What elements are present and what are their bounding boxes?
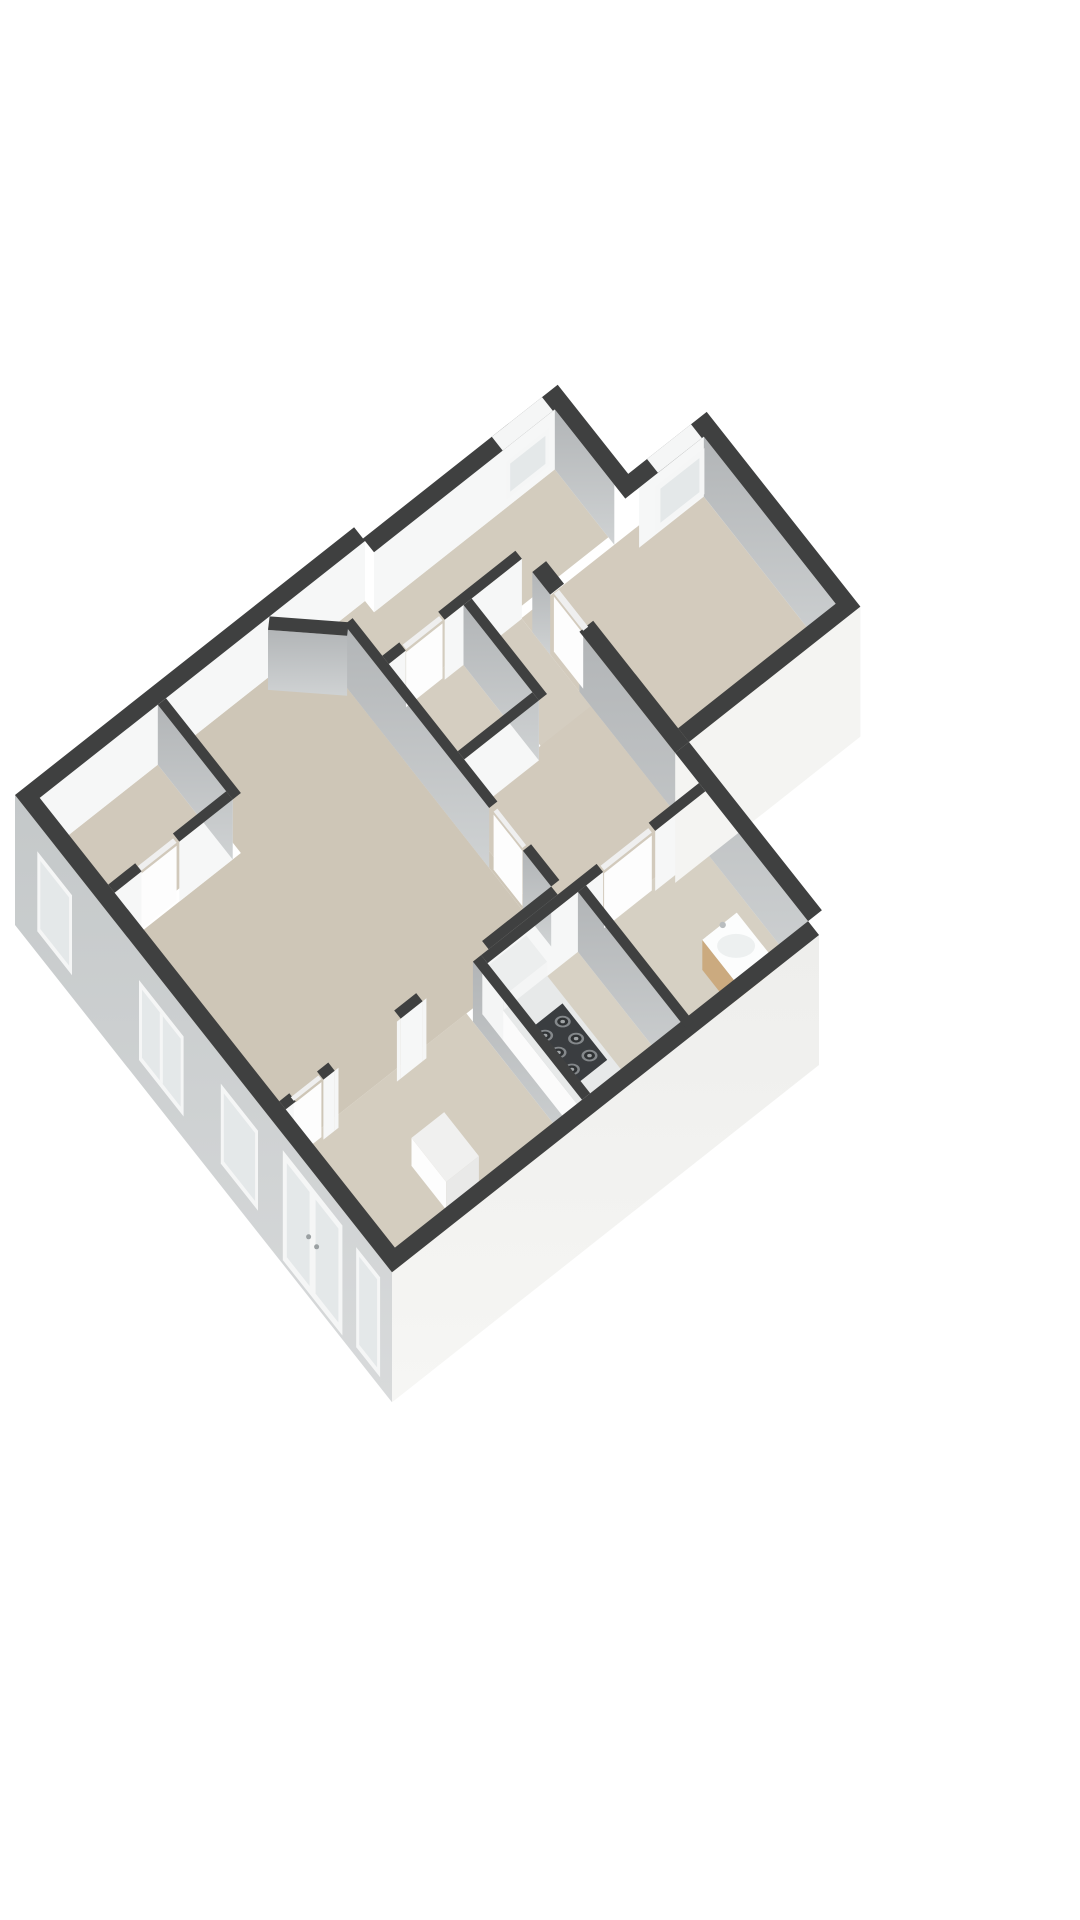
window-mullion [160,1012,163,1084]
hob-burner-icon [587,1054,592,1057]
hob-burner-icon [574,1037,579,1040]
hob-burner-icon [560,1020,565,1023]
door-handle-icon [314,1244,319,1249]
diagonal-wall-face [268,630,347,696]
faucet-icon [720,922,726,928]
interior-opening-jamb [335,1068,339,1131]
interior-opening-jamb [397,1019,401,1082]
door-handle-icon [306,1234,311,1239]
wall-face [323,1071,334,1140]
interior-opening-jamb [423,998,427,1061]
floor-plan-3d-render [0,0,1080,1920]
floor-plan-canvas [0,0,1080,1920]
sink-basin [717,934,755,958]
